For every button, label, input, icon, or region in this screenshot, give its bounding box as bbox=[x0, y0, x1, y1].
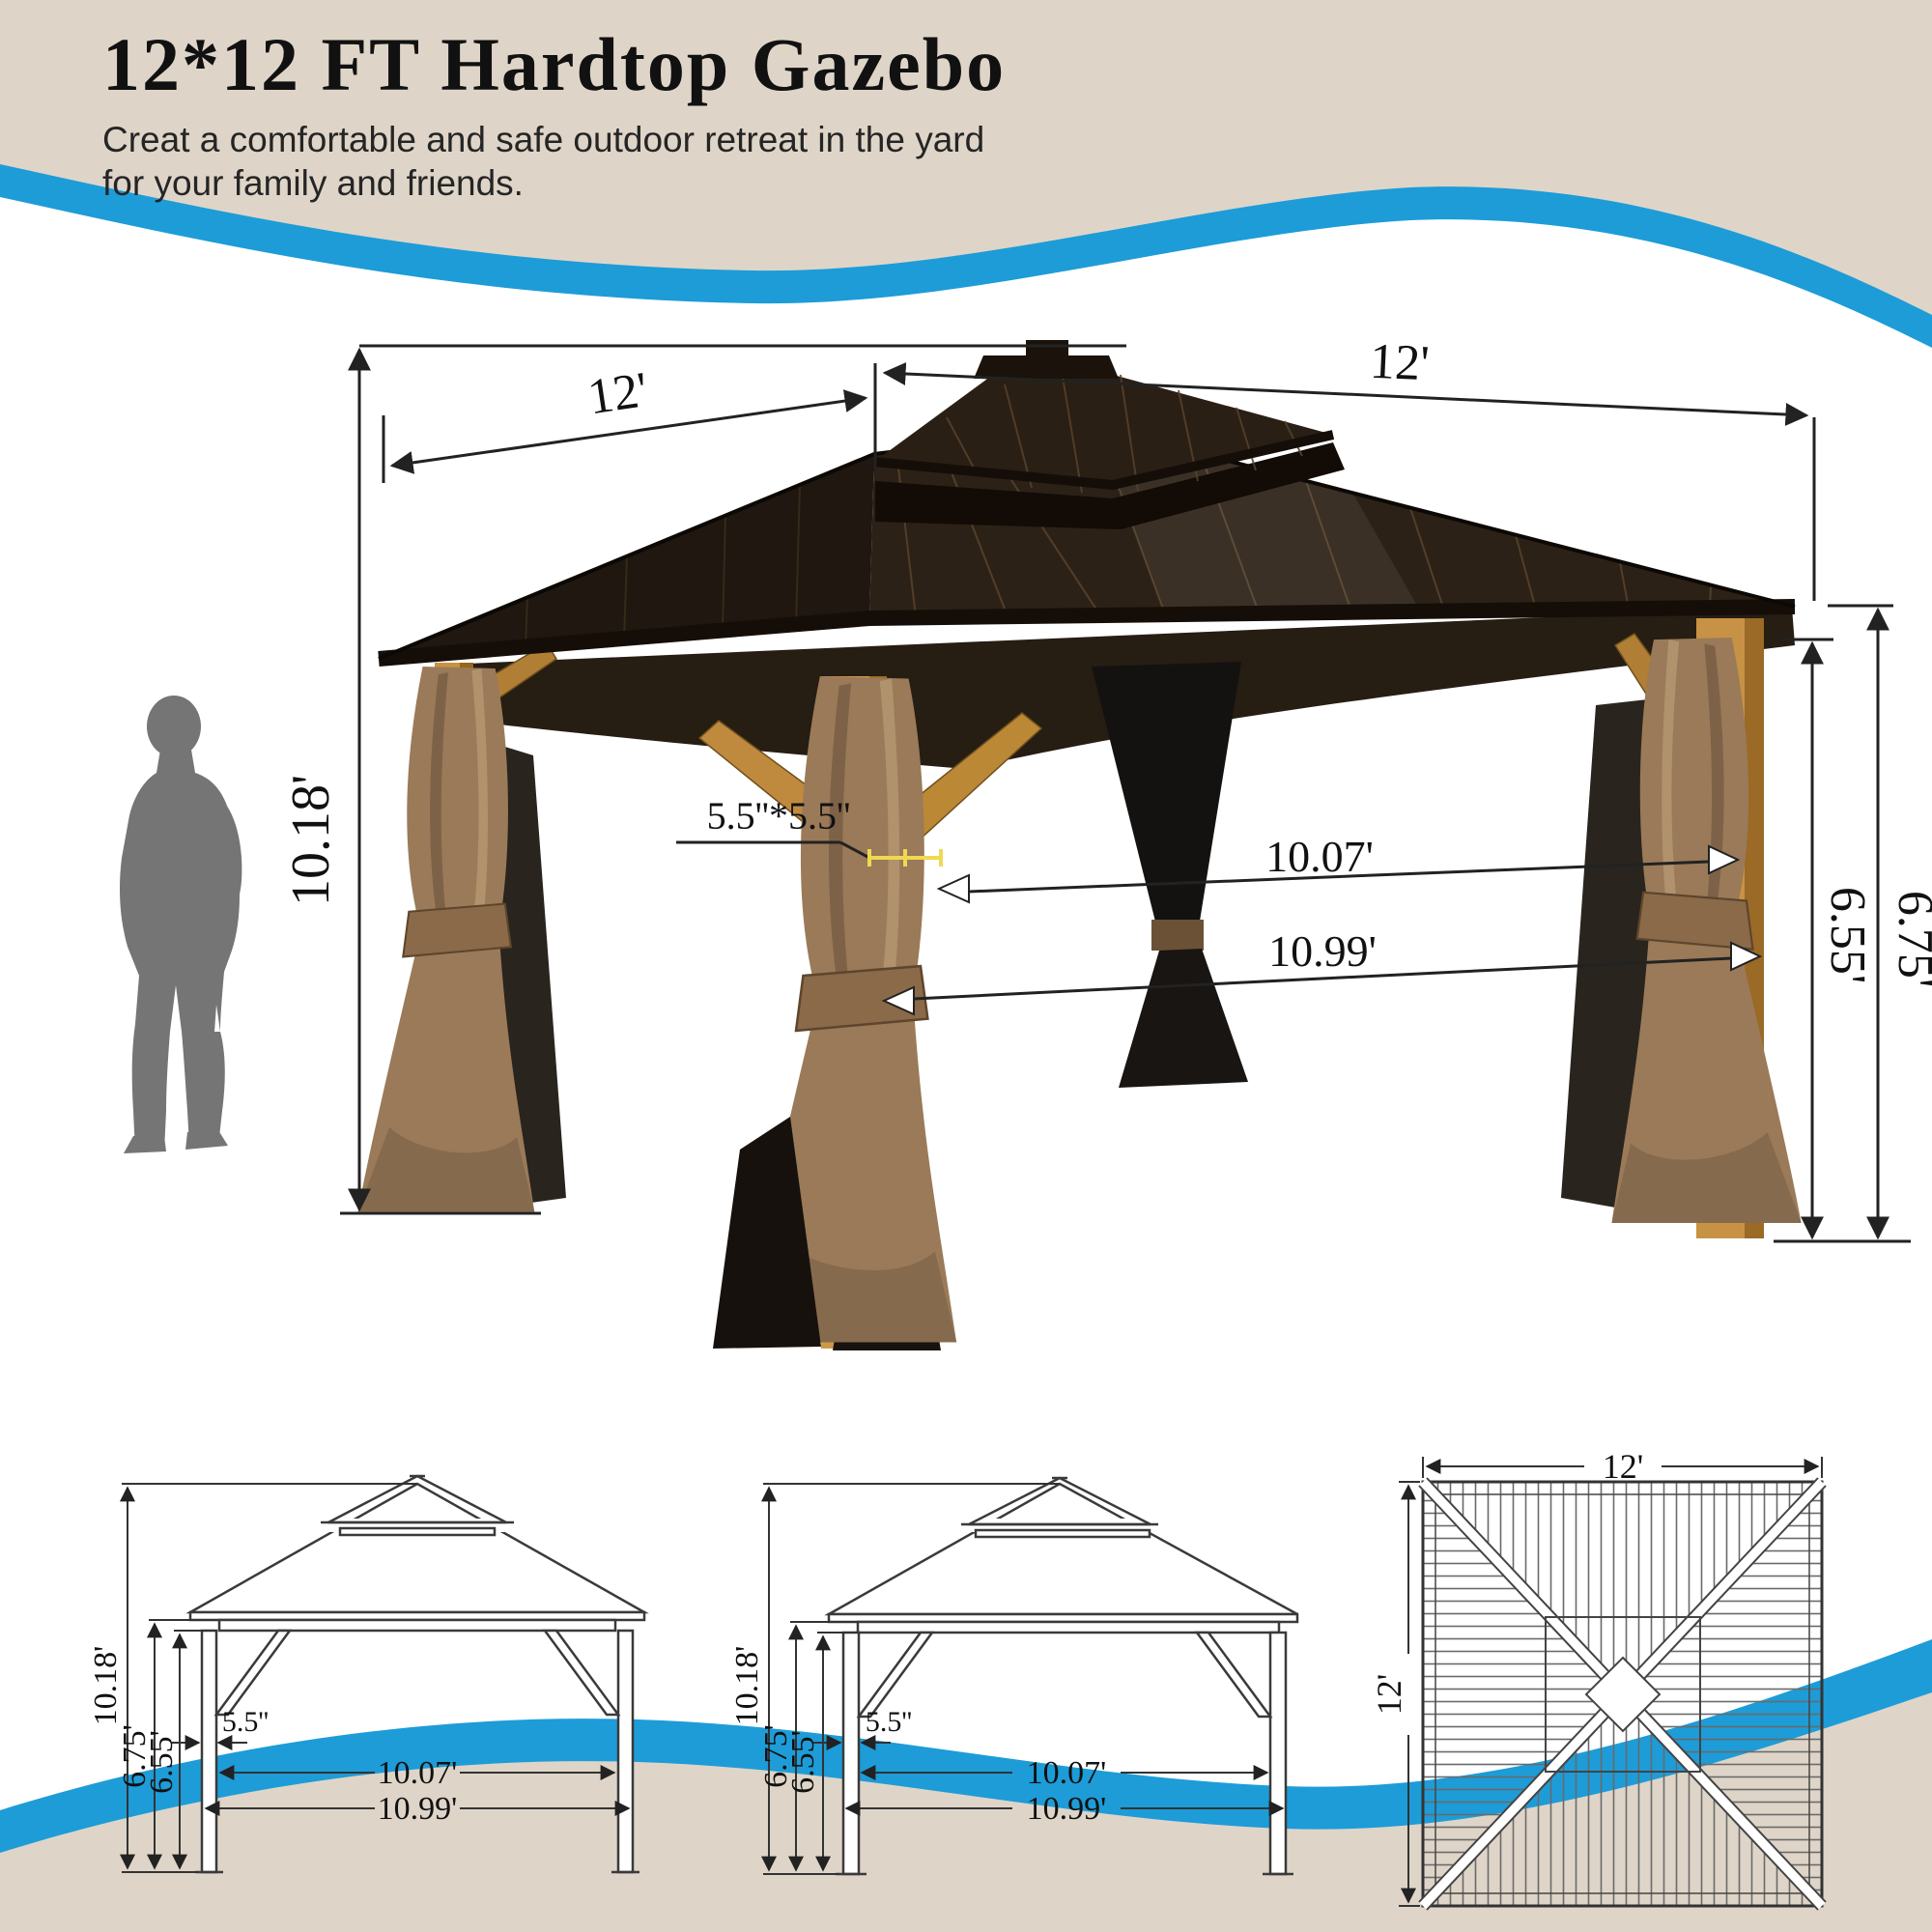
photo-height-label: 10.18' bbox=[281, 775, 341, 906]
photo-eave-outer-label: 6.75' bbox=[1888, 891, 1932, 987]
top-view-width-label: 12' bbox=[1603, 1447, 1644, 1486]
figure-head bbox=[147, 696, 201, 757]
gazebo-back-mesh-curtain bbox=[1092, 662, 1248, 1088]
header: 12*12 FT Hardtop Gazebo Creat a comforta… bbox=[102, 21, 1455, 205]
top-view-depth-label: 12' bbox=[1370, 1674, 1408, 1716]
page-subtitle-line1: Creat a comfortable and safe outdoor ret… bbox=[102, 118, 1455, 161]
photo-roof-left-label: 12' bbox=[584, 362, 651, 425]
product-dimension-sheet: 10.18' 12' 12' 5.5''*5.5'' 10.07' 10.99' bbox=[0, 0, 1932, 1932]
front-span-outer-label: 10.99' bbox=[378, 1791, 458, 1827]
side-span-inner-label: 10.07' bbox=[1027, 1755, 1107, 1791]
front-height-label: 10.18' bbox=[88, 1646, 124, 1726]
roof-plan-drawing: 12' 12' bbox=[1370, 1447, 1826, 1910]
front-post-inner-label: 6.55' bbox=[144, 1730, 180, 1794]
side-post-width-label: 5.5'' bbox=[866, 1706, 912, 1738]
figure-foot-front bbox=[185, 1130, 228, 1150]
side-height-label: 10.18' bbox=[729, 1646, 765, 1726]
diagram-graphics: 10.18' 12' 12' 5.5''*5.5'' 10.07' 10.99' bbox=[0, 0, 1932, 1932]
tier-cap bbox=[974, 355, 1119, 379]
photo-span-inner-label: 10.07' bbox=[1265, 832, 1374, 881]
side-span-outer-label: 10.99' bbox=[1027, 1791, 1107, 1827]
gazebo-photo bbox=[358, 340, 1802, 1350]
scale-figure bbox=[120, 696, 241, 1153]
photo-roof-right-label: 12' bbox=[1369, 334, 1431, 392]
figure-foot-back bbox=[124, 1136, 166, 1153]
arrow-span-inner-left bbox=[939, 875, 969, 902]
front-post-width-label: 5.5'' bbox=[222, 1706, 269, 1738]
photo-span-outer-label: 10.99' bbox=[1268, 926, 1377, 976]
page-title: 12*12 FT Hardtop Gazebo bbox=[102, 21, 1455, 108]
tier-finial bbox=[1026, 340, 1068, 355]
front-span-inner-label: 10.07' bbox=[378, 1755, 458, 1791]
side-post-inner-label: 6.55' bbox=[785, 1730, 821, 1794]
photo-eave-inner-label: 6.55' bbox=[1820, 887, 1875, 983]
page-subtitle-line2: for your family and friends. bbox=[102, 161, 1455, 205]
photo-post-section-label: 5.5''*5.5'' bbox=[707, 794, 851, 838]
